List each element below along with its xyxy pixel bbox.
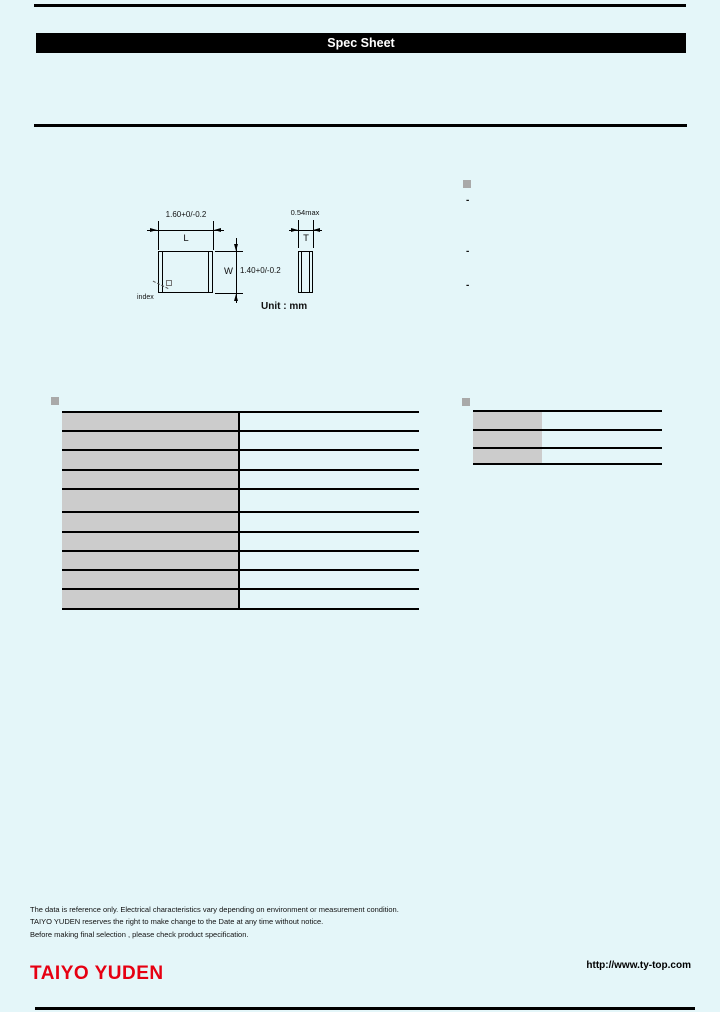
spec-table-value-cell [240, 490, 419, 511]
packaging-table-row [473, 447, 662, 463]
spec-table-row [62, 550, 419, 569]
packaging-table-row [473, 429, 662, 447]
list-item: - [466, 247, 469, 257]
bottom-rule [35, 1007, 695, 1010]
index-mark [166, 280, 172, 286]
spec-table-row [62, 511, 419, 531]
spec-table-label-cell [62, 552, 240, 569]
disclaimer-notes: The data is reference only. Electrical c… [30, 904, 399, 941]
spec-table-row [62, 449, 419, 469]
list-item: - [466, 281, 469, 291]
disclaimer-line: The data is reference only. Electrical c… [30, 904, 399, 916]
spec-table-label-cell [62, 471, 240, 488]
thickness-dimension-label: T [298, 233, 314, 244]
spec-table-label-cell [62, 432, 240, 449]
spec-table-row [62, 469, 419, 488]
packaging-table-value-cell [542, 412, 662, 429]
component-side-view [298, 251, 313, 293]
spec-table-row [62, 588, 419, 608]
packaging-table-value-cell [542, 449, 662, 463]
spec-table-label-cell [62, 413, 240, 430]
packaging-table-label-cell [473, 449, 542, 463]
spec-table-row [62, 430, 419, 449]
spec-sheet-page: Spec Sheet 1.60+0/-0.2 L index W 1.40+0/… [0, 0, 720, 1012]
extension-line [215, 293, 243, 294]
spec-table-value-cell [240, 413, 419, 430]
dim-arrow-icon [291, 228, 298, 232]
spec-table-row [62, 531, 419, 550]
spec-table-row [62, 488, 419, 511]
electrode-line [301, 252, 302, 292]
spec-table-label-cell [62, 571, 240, 588]
dim-arrow-icon [150, 228, 157, 232]
width-dimension-label: W [224, 266, 233, 277]
index-label: index [137, 294, 154, 301]
spec-table-label-cell [62, 533, 240, 550]
length-dimension-value: 1.60+0/-0.2 [145, 210, 227, 219]
section-bullet-icon [463, 180, 471, 188]
company-url-link[interactable]: http://www.ty-top.com [586, 960, 691, 971]
spec-table [62, 411, 419, 610]
spec-table-value-cell [240, 432, 419, 449]
spec-table-label-cell [62, 590, 240, 608]
dim-arrow-icon [234, 294, 238, 301]
spec-table-label-cell [62, 451, 240, 469]
spec-table-value-cell [240, 451, 419, 469]
electrode-line [309, 252, 310, 292]
header-divider-rule [34, 124, 687, 127]
thickness-dimension-value: 0.54max [278, 208, 332, 217]
section-bullet-icon [51, 397, 59, 405]
packaging-table-label-cell [473, 412, 542, 429]
width-dimension-value: 1.40+0/-0.2 [240, 266, 281, 275]
electrode-line [208, 252, 209, 292]
packaging-table-row [473, 410, 662, 429]
length-dimension-label: L [145, 233, 227, 244]
page-title: Spec Sheet [36, 33, 686, 53]
dim-arrow-icon [234, 244, 238, 251]
list-item: - [466, 196, 469, 206]
disclaimer-line: Before making final selection , please c… [30, 929, 399, 941]
spec-table-row [62, 569, 419, 588]
spec-table-value-cell [240, 471, 419, 488]
spec-table-value-cell [240, 513, 419, 531]
packaging-table-label-cell [473, 431, 542, 447]
spec-table-value-cell [240, 552, 419, 569]
spec-table-row [62, 411, 419, 430]
dim-arrow-icon [214, 228, 221, 232]
packaging-table-value-cell [542, 431, 662, 447]
dim-arrow-icon [313, 228, 320, 232]
packaging-table [473, 410, 662, 465]
spec-table-label-cell [62, 513, 240, 531]
unit-label: Unit : mm [261, 301, 307, 312]
spec-table-value-cell [240, 571, 419, 588]
top-rule [34, 4, 686, 7]
spec-table-value-cell [240, 590, 419, 608]
extension-line [215, 251, 243, 252]
spec-table-label-cell [62, 490, 240, 511]
section-bullet-icon [462, 398, 470, 406]
spec-table-value-cell [240, 533, 419, 550]
taiyo-yuden-logo: TAIYO YUDEN [30, 963, 164, 985]
disclaimer-line: TAIYO YUDEN reserves the right to make c… [30, 916, 399, 928]
